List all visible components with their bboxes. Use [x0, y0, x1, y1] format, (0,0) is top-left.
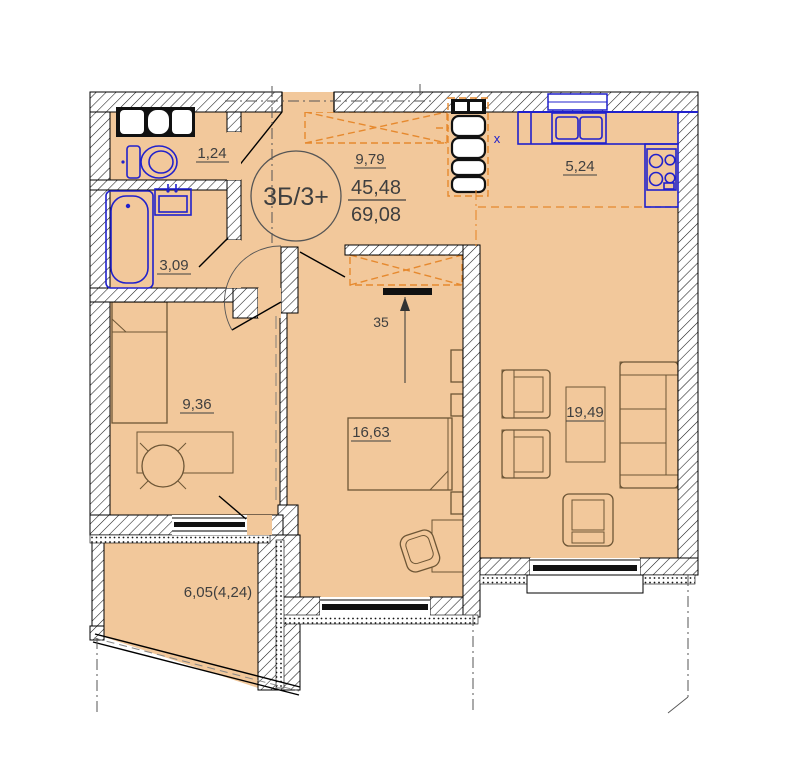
- hallway-area-label: 9,79: [355, 151, 384, 168]
- hall-stub: [281, 247, 298, 313]
- living-stub-left: [480, 558, 530, 575]
- nightstand: [451, 492, 463, 514]
- balcony-left-wall: [92, 535, 104, 638]
- bathroom-area-label: 3,09: [159, 257, 188, 274]
- fridge-column: [448, 98, 488, 196]
- bay-stub-left: [283, 597, 320, 617]
- bed-small: [112, 302, 167, 423]
- bedroom-living-wall: [463, 245, 480, 617]
- bedroom-partition: [280, 313, 287, 505]
- living-room-window: [527, 558, 643, 593]
- wc-door: [227, 132, 241, 180]
- nightstand: [451, 394, 463, 416]
- wc-area-label: 1,24: [197, 145, 226, 162]
- bedroom-master-area-label: 16,63: [352, 424, 390, 441]
- bath-bottom-wall: [90, 288, 240, 302]
- total-area-label: 69,08: [351, 204, 401, 226]
- floor-plan-drawing: 3Б/3+ 9,79 45,48 69,08 1,24 3,09 9,36 5,…: [0, 0, 796, 776]
- bedroom-small-area-label: 9,36: [182, 396, 211, 413]
- unit-type-label: 3Б/3+: [263, 183, 329, 211]
- bay-stub-right: [430, 597, 463, 617]
- chair-small-bedroom: [140, 443, 186, 489]
- kitchen-window: [548, 94, 607, 110]
- washing-machine: [116, 107, 195, 137]
- dimension-label: 35: [373, 314, 389, 330]
- armchair-2: [502, 430, 550, 478]
- balcony-area-label: 6,05(4,24): [184, 584, 252, 601]
- living-area-label: 45,48: [351, 177, 401, 199]
- window-sill: [527, 575, 643, 593]
- balcony-corner-block: [90, 626, 104, 640]
- kitchen-area-label: 5,24: [565, 158, 594, 175]
- hall-wall-block: [233, 288, 258, 318]
- bedroom-master-top-wall: [345, 245, 463, 255]
- washer-spot-label: x: [494, 131, 501, 146]
- living-stub-right: [640, 558, 698, 575]
- right-wall: [678, 112, 698, 560]
- balcony-floor: [104, 538, 258, 688]
- shelf: [451, 350, 463, 382]
- tv-armchair: [563, 494, 613, 546]
- bedroom-master-window: [320, 597, 430, 617]
- top-wall-right: [334, 92, 698, 112]
- bath-wall: [227, 180, 241, 240]
- left-wall: [90, 112, 110, 520]
- wc-wall: [227, 112, 241, 132]
- floor-plan-page: 3Б/3+ 9,79 45,48 69,08 1,24 3,09 9,36 5,…: [0, 0, 796, 776]
- sofa: [620, 362, 678, 488]
- living-room-area-label: 19,49: [566, 404, 604, 421]
- armchair-1: [502, 370, 550, 418]
